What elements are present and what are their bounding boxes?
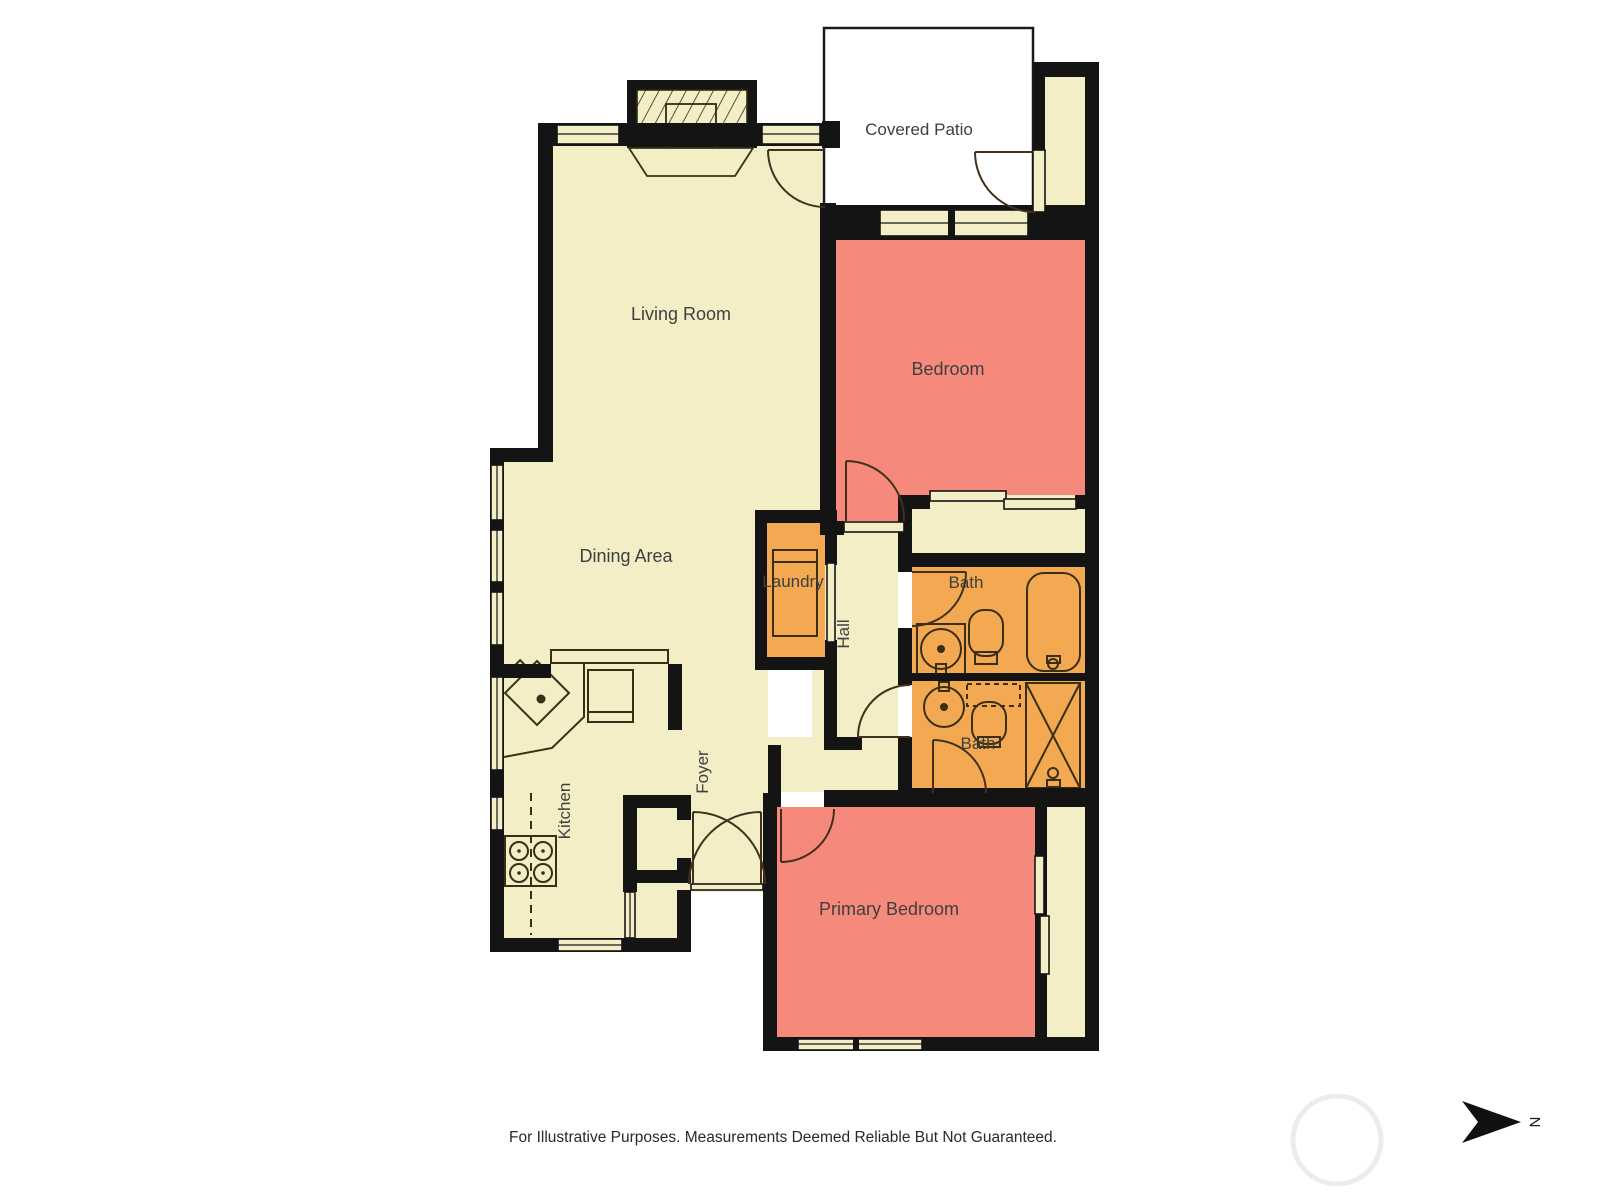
- north-arrow-icon: N: [1462, 1101, 1543, 1143]
- room-bedroom: [836, 240, 1085, 521]
- room-label-bedroom: Bedroom: [911, 359, 984, 379]
- room-label-dining-area: Dining Area: [579, 546, 673, 566]
- room-label-laundry: Laundry: [762, 572, 824, 591]
- room-label-kitchen: Kitchen: [555, 783, 574, 840]
- room-label-primary-bedroom: Primary Bedroom: [819, 899, 959, 919]
- room-covered-patio: [824, 28, 1033, 210]
- room-label-living-room: Living Room: [631, 304, 731, 324]
- room-primary-bedroom: [777, 807, 1035, 1037]
- room-label-hall: Hall: [834, 619, 853, 648]
- room-bath-lower: [912, 681, 1085, 790]
- floor-plan-page: Living Room Covered Patio Bedroom Dining…: [0, 0, 1600, 1200]
- room-label-bath-upper: Bath: [949, 573, 984, 592]
- room-label-foyer: Foyer: [693, 750, 712, 794]
- floor-plan-canvas: Living Room Covered Patio Bedroom Dining…: [0, 0, 1600, 1200]
- room-label-covered-patio: Covered Patio: [865, 120, 973, 139]
- watermark-circle: [1293, 1096, 1381, 1184]
- room-label-bath-lower: Bath: [961, 734, 996, 753]
- disclaimer-text: For Illustrative Purposes. Measurements …: [509, 1129, 1057, 1146]
- north-label: N: [1526, 1117, 1543, 1128]
